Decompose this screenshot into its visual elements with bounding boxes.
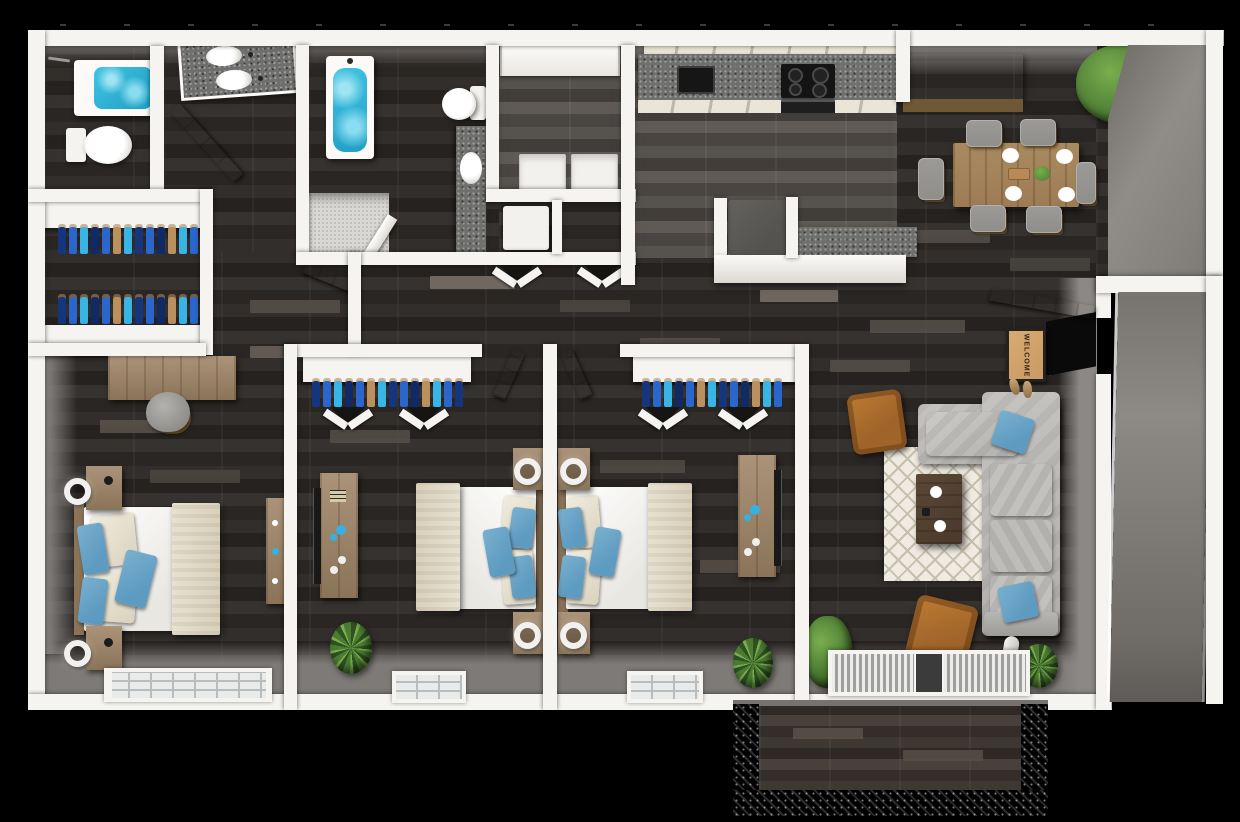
dining-chair xyxy=(1020,119,1056,146)
bed-foot-blanket xyxy=(416,483,460,611)
dining-chair xyxy=(1026,206,1062,233)
ring-lamp xyxy=(560,622,587,649)
wall-hallway-north xyxy=(296,252,636,265)
vanity-sink xyxy=(460,152,482,184)
bifold-closet-door xyxy=(495,265,539,291)
wall-kitchen-left xyxy=(621,45,635,285)
hanging-shirt xyxy=(190,297,198,324)
hanging-shirt xyxy=(455,381,463,407)
hanging-shirt xyxy=(367,381,375,407)
welcome-mat-text: WELCOME xyxy=(1023,333,1030,377)
peninsula-front xyxy=(714,255,906,283)
coffee-cup xyxy=(930,486,942,498)
stove-burner xyxy=(788,68,803,83)
hanging-shirt xyxy=(774,381,782,407)
faucet xyxy=(248,52,253,57)
wall-master-bed2 xyxy=(284,344,297,710)
exterior-wall-left xyxy=(28,30,45,710)
closet-clothes-rod xyxy=(312,381,466,407)
shoe xyxy=(1022,381,1032,399)
wall-bed2-bed3 xyxy=(543,344,557,710)
hanging-shirt xyxy=(179,227,187,254)
hanging-shirt xyxy=(323,381,331,407)
hanging-shirt xyxy=(697,381,705,407)
washer xyxy=(519,154,566,192)
lower-cabinet-face xyxy=(638,100,896,113)
welcome-mat: WELCOME xyxy=(1006,328,1046,382)
coffee-cup xyxy=(934,520,946,532)
dining-chair xyxy=(970,205,1006,232)
hanging-shirt xyxy=(719,381,727,407)
hanging-shirt xyxy=(157,227,165,254)
wall-bed3-living xyxy=(795,344,809,710)
balcony-deck xyxy=(759,706,1021,792)
nightstand-decor xyxy=(104,638,113,647)
hanging-shirt xyxy=(80,227,88,254)
hanging-shirt xyxy=(190,227,198,254)
dining-chair xyxy=(1076,162,1096,204)
floor-plank xyxy=(150,470,240,483)
hanging-shirt xyxy=(741,381,749,407)
dining-east-wall xyxy=(1108,45,1208,278)
vanity-counter xyxy=(456,126,486,252)
hanging-shirt xyxy=(664,381,672,407)
floor-plank xyxy=(1010,258,1090,271)
hanging-shirt xyxy=(113,297,121,324)
dresser-decor xyxy=(338,556,346,564)
hanging-shirt xyxy=(168,227,176,254)
hanging-shirt xyxy=(69,227,77,254)
hanging-shirt xyxy=(433,381,441,407)
bed-pillow xyxy=(558,555,587,600)
potted-plant xyxy=(330,622,372,674)
stove-burner xyxy=(789,83,802,96)
closet-clothes-rod xyxy=(642,381,788,407)
toilet-tank xyxy=(66,128,86,162)
hanging-shirt xyxy=(400,381,408,407)
sofa-seat-cushion xyxy=(990,520,1052,572)
dresser-decor xyxy=(744,514,751,521)
dresser-books xyxy=(330,490,346,502)
fridge-side-wall xyxy=(714,198,727,258)
wall-bedrooms-top-b xyxy=(620,344,796,357)
hanging-shirt xyxy=(102,297,110,324)
buffet-cabinet-face xyxy=(903,99,1023,112)
faucet xyxy=(258,76,263,81)
bed-pillow xyxy=(77,577,108,626)
tv xyxy=(774,470,781,566)
bifold-closet-door xyxy=(580,265,624,291)
dresser-decor xyxy=(330,566,338,574)
balcony-railing-right xyxy=(1021,704,1048,796)
bedroom2-window xyxy=(392,671,466,703)
hanging-shirt xyxy=(135,227,143,254)
stove-burner xyxy=(812,83,827,98)
ring-lamp xyxy=(64,478,91,505)
hanging-shirt xyxy=(653,381,661,407)
sliding-patio-door xyxy=(828,650,1030,696)
hanging-shirt xyxy=(708,381,716,407)
wall-below-bath1 xyxy=(28,189,212,202)
patio-door-blinds xyxy=(832,654,914,692)
toilet-bowl xyxy=(84,126,132,164)
exterior-wall-right-upper xyxy=(1206,30,1223,280)
bifold-closet-door xyxy=(402,407,446,433)
bifold-closet-door xyxy=(721,407,765,433)
hanging-shirt xyxy=(146,227,154,254)
hanging-shirt xyxy=(686,381,694,407)
exterior-wall-top xyxy=(28,30,1224,46)
potted-plant xyxy=(733,638,773,688)
toilet-bowl xyxy=(442,88,476,120)
bedroom3-window xyxy=(627,671,703,703)
desk-chair xyxy=(146,392,190,432)
accent-chair xyxy=(846,389,908,456)
wall-bath1-vanity xyxy=(150,46,164,192)
wall-peninsula-end xyxy=(786,197,798,258)
dimension-tick-line xyxy=(60,24,1200,26)
bed-foot-blanket xyxy=(648,483,692,611)
wall-bath2-laundry xyxy=(486,45,499,202)
hanging-shirt xyxy=(356,381,364,407)
bed-foot-blanket xyxy=(172,503,220,635)
hanging-shirt xyxy=(389,381,397,407)
serving-board xyxy=(1008,168,1030,180)
nightstand xyxy=(86,626,122,670)
floor-plank xyxy=(250,300,340,313)
breezeway-wall-band xyxy=(1096,276,1223,293)
dryer xyxy=(571,154,618,192)
wall-living-east-lower xyxy=(1096,374,1111,710)
ring-lamp xyxy=(514,622,541,649)
front-doorway-opening xyxy=(1046,312,1096,376)
bathtub-water xyxy=(94,67,152,109)
ring-lamp xyxy=(64,640,91,667)
dinner-plate xyxy=(1002,148,1019,163)
sofa-pillow xyxy=(997,581,1040,624)
closet-clothes-rod xyxy=(58,227,200,254)
wall-kitchen-cap xyxy=(896,30,910,102)
floor-plank xyxy=(560,300,630,312)
master-window xyxy=(104,668,272,702)
hanging-shirt xyxy=(730,381,738,407)
hanging-shirt xyxy=(124,297,132,324)
dinner-plate xyxy=(1005,186,1022,201)
hanging-shirt xyxy=(91,297,99,324)
dining-chair xyxy=(918,158,944,200)
hall-closet2-floor xyxy=(562,202,621,252)
patio-door-blinds xyxy=(944,654,1026,692)
buffet-cabinet xyxy=(903,54,1023,100)
hanging-shirt xyxy=(80,297,88,324)
hanging-shirt xyxy=(345,381,353,407)
stove-burner xyxy=(812,67,829,84)
deck-plank xyxy=(903,750,983,761)
oven-front xyxy=(781,100,835,113)
hanging-shirt xyxy=(411,381,419,407)
bifold-closet-door xyxy=(641,407,685,433)
wall-closet-right xyxy=(200,189,213,355)
floor-plank xyxy=(870,320,965,333)
floor-plank xyxy=(600,460,685,473)
tv xyxy=(314,488,321,584)
ring-lamp xyxy=(560,458,587,485)
closet-clothes-rod xyxy=(58,297,200,324)
closet-shelf xyxy=(36,199,206,228)
hanging-shirt xyxy=(675,381,683,407)
dinner-plate xyxy=(1056,149,1073,164)
dresser-decor xyxy=(330,534,337,541)
wall-bedrooms-top-a xyxy=(284,344,482,357)
balcony-railing-left xyxy=(733,704,759,796)
dresser-decor xyxy=(272,520,278,526)
wall-closet-divider xyxy=(552,200,562,254)
dresser-decor xyxy=(336,525,346,535)
kitchen-sink xyxy=(677,66,715,94)
table-centerpiece-plant xyxy=(1034,166,1050,181)
hanging-shirt xyxy=(642,381,650,407)
nightstand xyxy=(86,466,122,510)
exterior-wall-right-lower xyxy=(1206,276,1223,704)
hanging-shirt xyxy=(146,297,154,324)
window-pane xyxy=(631,675,699,699)
hanging-shirt xyxy=(168,297,176,324)
bifold-closet-door xyxy=(326,407,370,433)
bathtub-water xyxy=(333,68,367,152)
wall-master-top xyxy=(28,343,206,356)
dining-chair xyxy=(966,120,1002,147)
dresser-decor xyxy=(744,548,752,556)
hanging-shirt xyxy=(113,227,121,254)
deck-plank xyxy=(793,728,863,739)
hanging-shirt xyxy=(179,297,187,324)
hanging-shirt xyxy=(102,227,110,254)
wall-bath2-left xyxy=(296,45,309,255)
dinner-plate xyxy=(1058,187,1075,202)
hanging-shirt xyxy=(752,381,760,407)
coffee-table-tray xyxy=(922,508,930,516)
peninsula-counter xyxy=(798,227,917,257)
sofa-seat-cushion xyxy=(990,464,1052,516)
refrigerator xyxy=(728,200,790,257)
water-heater xyxy=(503,206,549,250)
hanging-shirt xyxy=(58,297,66,324)
wall-vestibule xyxy=(348,252,361,354)
hanging-shirt xyxy=(422,381,430,407)
dresser-decor xyxy=(750,505,760,515)
window-pane xyxy=(108,672,268,698)
hanging-shirt xyxy=(91,227,99,254)
hanging-shirt xyxy=(444,381,452,407)
hanging-shirt xyxy=(334,381,342,407)
floor-plank xyxy=(830,360,910,372)
balcony xyxy=(733,700,1048,818)
apartment-floor-plan: WELCOME xyxy=(0,0,1240,822)
tub-faucet xyxy=(347,58,353,64)
hanging-shirt xyxy=(58,227,66,254)
hanging-shirt xyxy=(135,297,143,324)
hanging-shirt xyxy=(378,381,386,407)
dresser-decor xyxy=(272,548,279,555)
dresser-decor xyxy=(752,538,760,546)
floor-plank xyxy=(760,290,838,302)
dresser-decor xyxy=(272,578,278,584)
ring-lamp xyxy=(514,458,541,485)
hanging-shirt xyxy=(763,381,771,407)
breezeway-panel xyxy=(1110,292,1211,702)
patio-door-glass xyxy=(916,654,942,692)
nightstand-decor xyxy=(104,476,113,485)
hanging-shirt xyxy=(124,227,132,254)
hanging-shirt xyxy=(69,297,77,324)
hanging-shirt xyxy=(312,381,320,407)
window-pane xyxy=(396,675,462,699)
balcony-railing-bottom xyxy=(733,790,1048,816)
hanging-shirt xyxy=(157,297,165,324)
